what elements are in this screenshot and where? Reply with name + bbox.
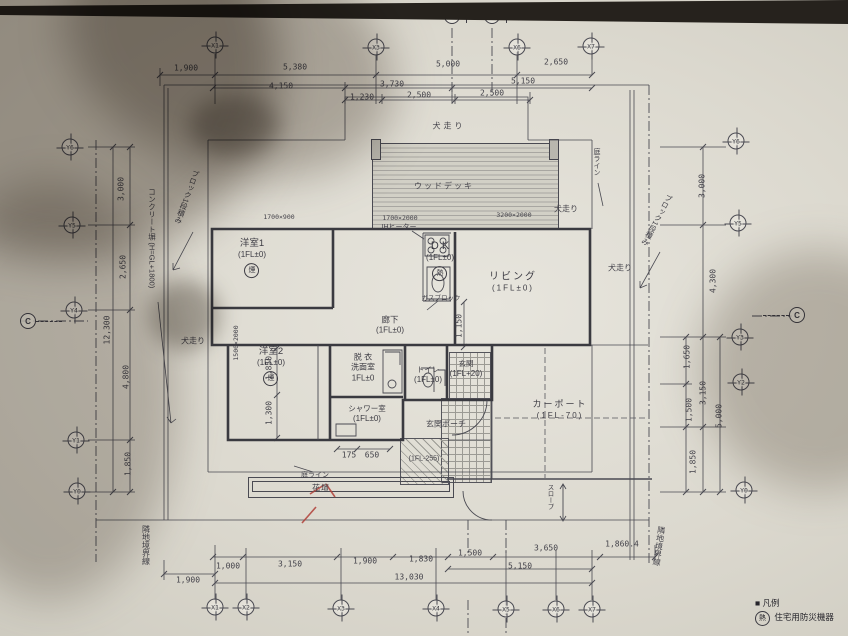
dimension-label: 650: [365, 451, 379, 460]
dimension-label: 175: [342, 451, 356, 460]
dimension-label: 1700×2000: [382, 214, 417, 222]
plan-label: ブロック1段積み: [639, 192, 675, 247]
dimension-label: 1,830: [409, 555, 433, 564]
dimension-label: 4,800: [122, 365, 131, 389]
grid-marker-y0: Y0: [69, 483, 86, 500]
grid-marker-x7: X7: [584, 601, 601, 618]
room-label-group: 洋室1(1FL±0)煙: [238, 238, 266, 278]
plan-label: スロープ: [544, 484, 554, 510]
grid-marker-label: Y6: [65, 143, 75, 151]
plan-label: 犬走り: [608, 263, 632, 274]
grid-marker-y3: Y3: [732, 329, 749, 346]
dimension-label: 2,500: [480, 89, 504, 98]
dimension-label: 3,650: [534, 544, 558, 553]
grid-marker-label: X6: [512, 43, 522, 51]
room-label: (1FL±0): [376, 325, 404, 335]
grid-marker-y4: Y4: [66, 302, 83, 319]
plan-label: ガスブロック: [422, 292, 461, 302]
legend: ■ 凡例 熱 住宅用防災機器: [755, 596, 834, 626]
plan-label: 花壇: [312, 483, 330, 494]
room-label: (1FL±0): [238, 250, 266, 260]
fire-detector-symbol: 煙: [244, 263, 259, 278]
grid-marker-label: Y2: [736, 378, 746, 386]
grid-marker-label: Y0: [739, 486, 749, 494]
dimension-label: 3,000: [698, 174, 707, 198]
grid-marker-x1: X1: [207, 37, 224, 54]
fire-detector-symbol: 煙: [263, 371, 278, 386]
dimension-label: 1,300: [265, 401, 274, 425]
grid-marker-x7: X7: [583, 38, 600, 55]
room-label: 洋室1: [238, 238, 266, 250]
dimension-label: 5,000: [715, 404, 724, 428]
grid-marker-label: Y1: [71, 436, 81, 444]
room-label: 玄関: [450, 359, 483, 369]
legend-bullet: ■: [755, 598, 760, 608]
grid-marker-y5: Y5: [64, 217, 81, 234]
plan-label: 玄関ポーチ: [426, 419, 466, 430]
room-label: トイレ: [414, 365, 442, 375]
room-label-group: リビング(1FL±0): [489, 270, 537, 293]
floor-plan-photo: { "document": {"type": "架構平面図 / 1階平面図 (p…: [0, 0, 848, 636]
room-label-group: 脱 衣洗面室1FL±0: [351, 352, 375, 383]
dimension-label: 4,150: [269, 82, 293, 91]
room-label: (1FL±0): [414, 375, 442, 385]
room-label: (1FL±0): [257, 358, 285, 368]
grid-marker-y0: Y0: [736, 482, 753, 499]
grid-marker-x6: X6: [548, 601, 565, 618]
legend-title-row: ■ 凡例: [755, 596, 834, 610]
grid-marker-y2: Y2: [733, 374, 750, 391]
room-label-group: 廊下(1FL±0): [376, 314, 404, 335]
dimension-label: 12,300: [103, 316, 112, 345]
dimension-label: 1,230: [350, 93, 374, 102]
dimension-label: 3,000: [117, 177, 126, 201]
dimension-label: 2,500: [407, 91, 431, 100]
room-label: 洋室2: [257, 346, 285, 358]
dimension-label: 1,850: [124, 452, 133, 476]
dimension-label: 5,150: [511, 77, 535, 86]
room-label-group: 洋室2(1FL±0)煙: [257, 346, 285, 386]
dimension-label: 5,000: [436, 60, 460, 69]
grid-marker-label: Y4: [69, 306, 79, 314]
grid-marker-label: X1: [210, 41, 220, 49]
room-label: (1FL+20): [450, 369, 483, 379]
room-label: 脱 衣: [351, 352, 375, 362]
dimension-label: 1,150: [455, 314, 464, 338]
plan-label: ブロック1段積み: [172, 168, 202, 225]
room-label: (1FL±0): [489, 283, 537, 293]
plan-label: 庭ライン: [591, 148, 601, 176]
grid-marker-label: Y0: [72, 487, 82, 495]
plan-label: 隣地境界線: [141, 525, 152, 565]
grid-marker-x3: X3: [333, 600, 350, 617]
dimension-label: 3,730: [380, 80, 404, 89]
plan-label: IHヒーター: [382, 222, 417, 232]
room-label-group: 玄関(1FL+20): [450, 359, 483, 379]
legend-item-label: 住宅用防災機器: [774, 612, 834, 622]
grid-marker-label: X7: [587, 605, 597, 613]
room-label-group: シャワー室(1FL±0): [348, 404, 386, 424]
section-marker-flag: [36, 321, 62, 322]
plan-label: コンクリート塀 (H=GL+1800): [147, 188, 158, 288]
dimension-label: 1,900: [353, 557, 377, 566]
legend-item-row: 熱 住宅用防災機器: [755, 610, 834, 625]
dimension-label: 13,030: [395, 573, 424, 582]
section-marker-label: C: [794, 311, 800, 320]
grid-marker-y1: Y1: [68, 432, 85, 449]
room-label: (1FL±0): [426, 253, 454, 263]
dimension-label: 1,000: [216, 562, 240, 571]
grid-marker-label: Y6: [731, 137, 741, 145]
dimension-label: 1,500: [458, 549, 482, 558]
fire-detector-symbol: 熱: [755, 611, 770, 626]
section-marker-label: C: [25, 317, 31, 326]
grid-marker-label: Y5: [733, 219, 743, 227]
grid-marker-x2: X2: [238, 599, 255, 616]
section-marker-c: C: [20, 313, 36, 329]
room-label: シャワー室: [348, 404, 386, 414]
grid-marker-label: X7: [586, 42, 596, 50]
dimension-label: 1,500: [685, 398, 694, 422]
dimension-label: 3,150: [278, 560, 302, 569]
grid-marker-label: X5: [501, 605, 511, 613]
dimension-label: 1,850: [689, 450, 698, 474]
room-label-group: トイレ(1FL±0): [414, 365, 442, 385]
plan-label: (1FL-255): [409, 456, 440, 463]
dimension-label: 1,650: [683, 345, 692, 369]
text-layer: ■ 凡例 熱 住宅用防災機器 1,9005,3805,0002,6504,150…: [0, 0, 848, 636]
dimension-label: 5,380: [283, 63, 307, 72]
grid-marker-label: X2: [241, 603, 251, 611]
room-label-group: D K(1FL±0)熱: [426, 239, 454, 281]
room-label: リビング: [489, 270, 537, 283]
grid-marker-label: X6: [551, 605, 561, 613]
plan-label: 庭ライン: [301, 470, 329, 480]
grid-marker-x4: X4: [428, 600, 445, 617]
dimension-label: 3200×2000: [496, 211, 531, 219]
photo-of-drawing: ■ 凡例 熱 住宅用防災機器 1,9005,3805,0002,6504,150…: [0, 0, 848, 636]
grid-marker-x5: X5: [498, 601, 515, 618]
grid-marker-label: X1: [210, 603, 220, 611]
plan-label: 隣地境界線: [651, 525, 667, 566]
dimension-label: 3,150: [699, 381, 708, 405]
room-label: (1FL±0): [348, 414, 386, 424]
dimension-label: 2,650: [544, 58, 568, 67]
plan-label: ウッドデッキ: [414, 181, 474, 192]
plan-label: 犬走り: [554, 204, 578, 215]
grid-marker-y6: Y6: [728, 133, 745, 150]
plan-label: 犬走り: [181, 336, 205, 347]
grid-marker-label: X3: [336, 604, 346, 612]
fire-detector-symbol: 熱: [432, 266, 447, 281]
section-marker-flag: [763, 315, 789, 316]
room-label: カーポート: [532, 399, 587, 411]
room-label: 洗面室: [351, 363, 375, 373]
dimension-label: 1,860.4: [605, 540, 639, 549]
dimension-label: 4,300: [709, 269, 718, 293]
grid-marker-x1: X1: [207, 599, 224, 616]
section-marker-c: C: [789, 307, 805, 323]
dimension-label: 2,650: [119, 255, 128, 279]
grid-marker-x3: X3: [368, 39, 385, 56]
dimension-label: 1,900: [174, 64, 198, 73]
legend-title: 凡例: [763, 598, 780, 608]
dimension-label: 1700×900: [263, 213, 294, 221]
room-label: (1FL-70): [532, 411, 587, 421]
grid-marker-y6: Y6: [62, 139, 79, 156]
grid-marker-label: X4: [431, 604, 441, 612]
grid-marker-label: X3: [371, 43, 381, 51]
dimension-label: 5,150: [508, 562, 532, 571]
dimension-label: 1,900: [176, 576, 200, 585]
grid-marker-label: Y5: [67, 221, 77, 229]
grid-marker-x6: X6: [509, 39, 526, 56]
room-label-group: カーポート(1FL-70): [532, 399, 587, 421]
room-label: 1FL±0: [351, 373, 375, 383]
dimension-label: 1500×2000: [232, 325, 240, 360]
room-label: 廊下: [376, 314, 404, 325]
grid-marker-y5: Y5: [730, 215, 747, 232]
room-label: D K: [426, 239, 454, 253]
grid-marker-label: Y3: [735, 333, 745, 341]
plan-label: 犬走り: [433, 121, 466, 132]
